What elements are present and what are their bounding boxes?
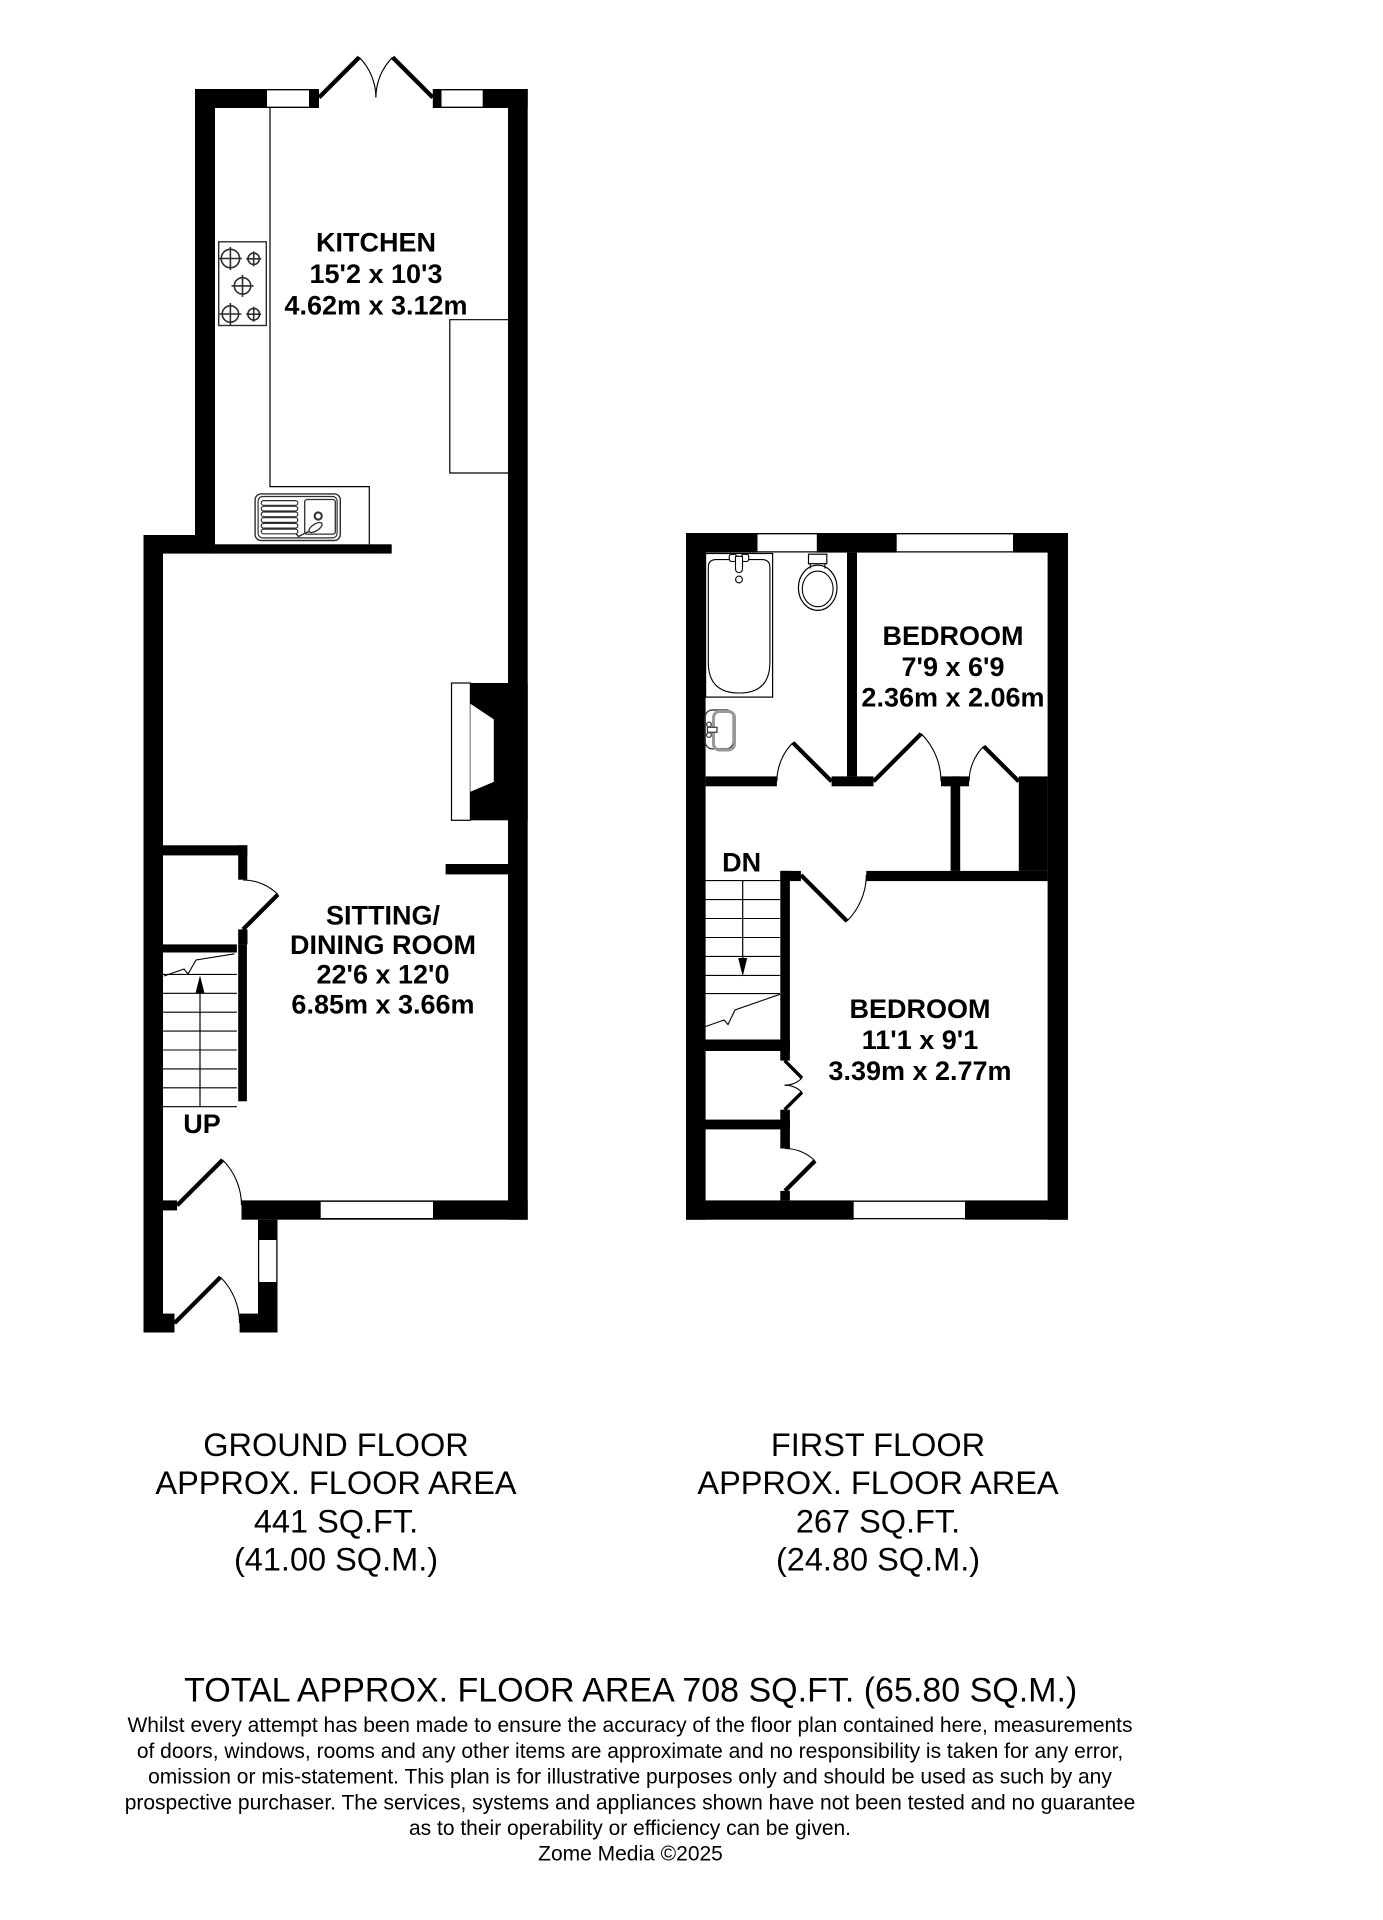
svg-text:DN: DN	[722, 848, 761, 878]
svg-text:prospective purchaser. The ser: prospective purchaser. The services, sys…	[125, 1791, 1136, 1814]
svg-text:DINING ROOM: DINING ROOM	[290, 930, 476, 960]
svg-text:omission or mis-statement. Thi: omission or mis-statement. This plan is …	[148, 1766, 1112, 1789]
svg-text:SITTING/: SITTING/	[326, 900, 440, 930]
svg-text:6.85m x 3.66m: 6.85m x 3.66m	[291, 989, 474, 1019]
svg-text:(41.00 SQ.M.): (41.00 SQ.M.)	[234, 1542, 438, 1578]
svg-text:of doors, windows, rooms and a: of doors, windows, rooms and any other i…	[137, 1740, 1123, 1763]
svg-text:441 SQ.FT.: 441 SQ.FT.	[254, 1503, 418, 1539]
svg-text:267 SQ.FT.: 267 SQ.FT.	[796, 1503, 960, 1539]
svg-text:UP: UP	[183, 1109, 221, 1139]
svg-text:BEDROOM: BEDROOM	[850, 994, 991, 1024]
svg-text:22'6 x 12'0: 22'6 x 12'0	[317, 960, 450, 990]
svg-text:Whilst every attempt has been: Whilst every attempt has been made to en…	[127, 1714, 1132, 1737]
svg-text:15'2 x 10'3: 15'2 x 10'3	[310, 259, 443, 289]
svg-text:11'1 x 9'1: 11'1 x 9'1	[862, 1025, 978, 1055]
svg-text:Zome Media ©2025: Zome Media ©2025	[538, 1842, 723, 1865]
svg-text:APPROX. FLOOR AREA: APPROX. FLOOR AREA	[155, 1465, 517, 1501]
svg-text:7'9 x 6'9: 7'9 x 6'9	[902, 652, 1005, 682]
svg-text:4.62m x 3.12m: 4.62m x 3.12m	[284, 291, 467, 321]
svg-text:as to their operability or eff: as to their operability or efficiency ca…	[409, 1817, 851, 1840]
svg-text:TOTAL APPROX. FLOOR AREA 708 S: TOTAL APPROX. FLOOR AREA 708 SQ.FT. (65.…	[184, 1672, 1077, 1710]
svg-text:APPROX. FLOOR AREA: APPROX. FLOOR AREA	[697, 1465, 1059, 1501]
svg-text:(24.80 SQ.M.): (24.80 SQ.M.)	[776, 1542, 980, 1578]
svg-text:BEDROOM: BEDROOM	[883, 621, 1024, 651]
svg-text:KITCHEN: KITCHEN	[316, 227, 436, 257]
svg-text:FIRST FLOOR: FIRST FLOOR	[771, 1427, 985, 1463]
svg-text:2.36m x 2.06m: 2.36m x 2.06m	[861, 683, 1044, 713]
svg-text:3.39m x 2.77m: 3.39m x 2.77m	[828, 1056, 1011, 1086]
svg-text:GROUND FLOOR: GROUND FLOOR	[203, 1427, 468, 1463]
